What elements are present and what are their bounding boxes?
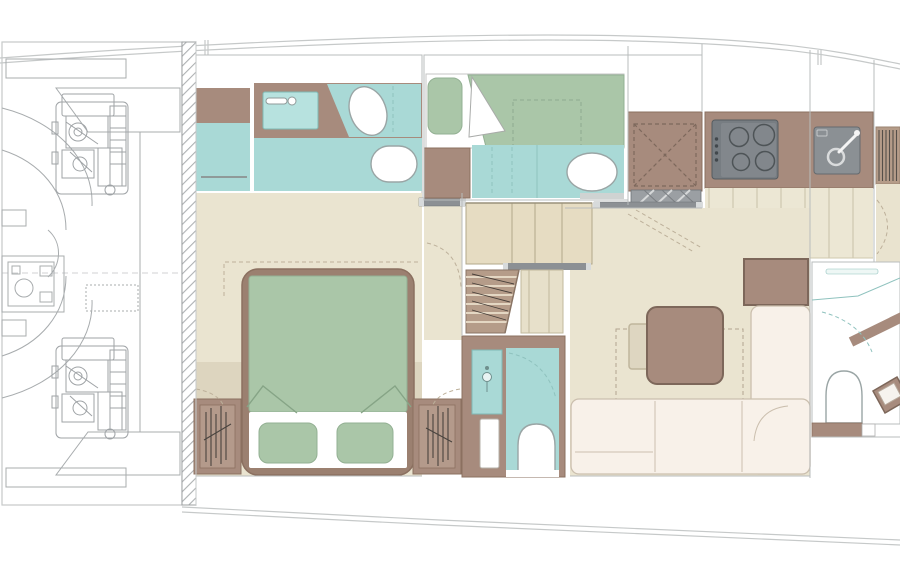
berth-pillow [428,78,462,134]
wet-floor-left [196,123,250,191]
sliding-door [419,198,465,206]
sideboard [744,259,808,305]
station-tick-aft [818,50,821,65]
wall-notch [862,424,875,436]
understair-panel [521,270,563,333]
engine-room [2,42,182,505]
cooktop [712,120,778,179]
bidet [371,146,417,182]
faucet-knob-icon [288,97,296,105]
wardrobe-starboard [413,399,461,474]
stair-landing [876,184,900,262]
double-bed-mattress [249,276,407,412]
master-cabin [194,193,461,476]
station-tick-fore [205,40,208,55]
floor-plan-canvas [0,0,900,564]
toilet-day-head [518,424,555,473]
pillow-right [337,423,393,463]
stair-cabinet [466,203,592,264]
dining-table [647,307,723,384]
door [480,419,499,468]
hatch-dashed [86,285,138,311]
salon [570,208,810,476]
starboard-engine [52,338,128,439]
handrail-bar [503,263,591,270]
corridor [419,196,465,340]
floor-plan-svg [0,0,900,564]
shower-grate [631,190,701,203]
day-head [462,336,565,477]
toilet-aft [826,371,862,423]
shower-room [628,55,702,203]
generator [2,256,64,312]
corridor-floor [424,196,462,340]
aft-staircase [876,127,900,262]
guest-bathroom [424,145,624,199]
pillow-left [259,423,317,463]
shower-tray [424,148,470,198]
port-engine [52,94,128,195]
door-track [580,193,624,199]
shelf [826,269,878,274]
vanity-counter-left [196,88,250,123]
galley-sink [814,127,860,174]
toilet-guest [567,153,617,191]
aft-wall [812,423,862,437]
faucet-icon [483,373,492,382]
master-bathroom [196,55,422,198]
tank-aft [6,468,126,487]
faucet-icon [266,98,287,104]
aft-bathroom [812,262,900,437]
foundation-fore [56,88,180,132]
wardrobe-port [194,399,241,474]
